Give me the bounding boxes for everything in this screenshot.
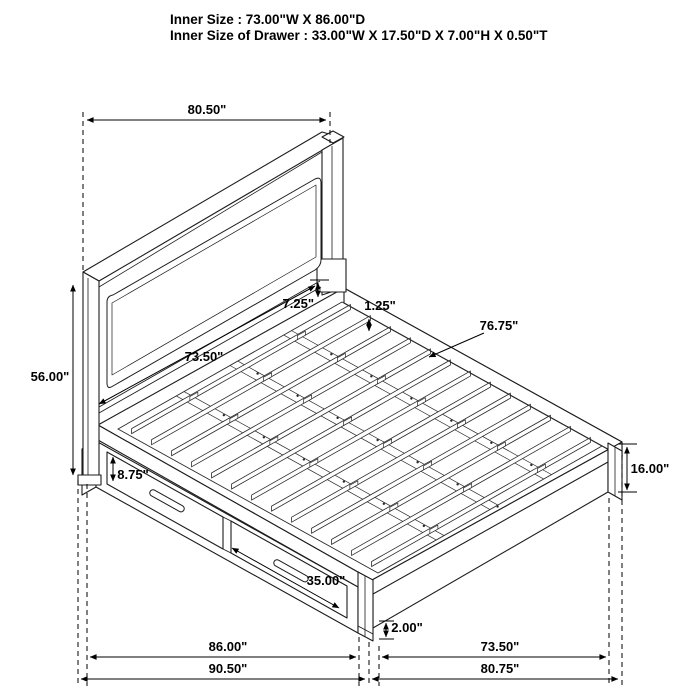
dim-drawer-face-height: 8.75" bbox=[103, 467, 163, 482]
dim-side-rail-length: 76.75" bbox=[468, 318, 530, 333]
dim-footboard-inner-width: 73.50" bbox=[470, 639, 530, 654]
foot-front-leg bbox=[358, 572, 373, 641]
bed-technical-drawing: Inner Size : 73.00"W X 86.00"D Inner Siz… bbox=[0, 0, 700, 700]
dim-overall-depth: 90.50" bbox=[198, 661, 258, 676]
note-drawer-size: Inner Size of Drawer : 33.00"W X 17.50"D… bbox=[170, 28, 548, 43]
headboard-left-post bbox=[83, 272, 99, 477]
dim-drawer-width: 35.00" bbox=[296, 573, 356, 588]
dim-overall-width: 80.75" bbox=[470, 661, 530, 676]
dim-slat-thickness: 1.25" bbox=[356, 298, 404, 313]
dim-base-side-length: 86.00" bbox=[198, 639, 258, 654]
dim-headboard-height: 56.00" bbox=[20, 369, 80, 384]
bed-line-art bbox=[0, 0, 700, 700]
dim-headboard-width: 80.50" bbox=[177, 102, 237, 117]
dim-floor-clearance: 2.00" bbox=[379, 620, 435, 635]
dim-headboard-inner-width: 73.50" bbox=[173, 349, 235, 364]
note-inner-size: Inner Size : 73.00"W X 86.00"D bbox=[170, 12, 365, 27]
dim-footboard-height: 16.00" bbox=[620, 461, 680, 476]
dim-headboard-to-deck: 7.25" bbox=[266, 296, 314, 311]
